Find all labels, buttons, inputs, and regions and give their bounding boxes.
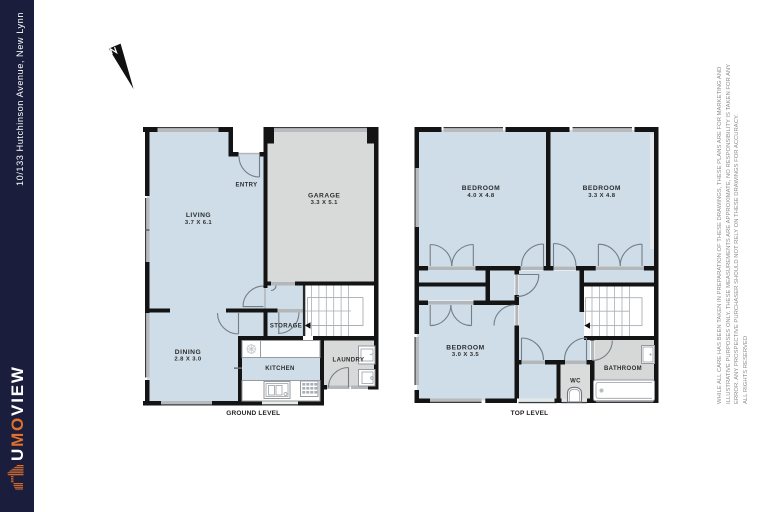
svg-text:LIVING: LIVING (186, 212, 211, 219)
svg-text:3.7 X 6.1: 3.7 X 6.1 (185, 220, 213, 226)
svg-text:TOP LEVEL: TOP LEVEL (511, 410, 549, 417)
svg-text:BEDROOM: BEDROOM (583, 185, 621, 192)
svg-text:3.0 X 3.5: 3.0 X 3.5 (452, 352, 480, 358)
svg-text:BEDROOM: BEDROOM (462, 185, 500, 192)
svg-text:GARAGE: GARAGE (308, 192, 340, 199)
svg-text:ENTRY: ENTRY (235, 183, 257, 189)
svg-text:LAUNDRY: LAUNDRY (333, 358, 365, 364)
svg-text:2.8 X 3.0: 2.8 X 3.0 (174, 356, 202, 362)
svg-text:DINING: DINING (175, 349, 201, 356)
svg-text:BATHROOM: BATHROOM (604, 366, 642, 372)
svg-text:BEDROOM: BEDROOM (446, 344, 484, 351)
svg-text:3.3 X 5.1: 3.3 X 5.1 (311, 200, 339, 206)
svg-text:WC: WC (570, 379, 581, 385)
svg-text:4.0 X 4.8: 4.0 X 4.8 (467, 193, 495, 199)
svg-text:STORAGE: STORAGE (270, 324, 302, 330)
svg-text:GROUND LEVEL: GROUND LEVEL (226, 410, 280, 417)
svg-text:3.3 X 4.8: 3.3 X 4.8 (588, 193, 616, 199)
svg-text:KITCHEN: KITCHEN (265, 366, 294, 372)
